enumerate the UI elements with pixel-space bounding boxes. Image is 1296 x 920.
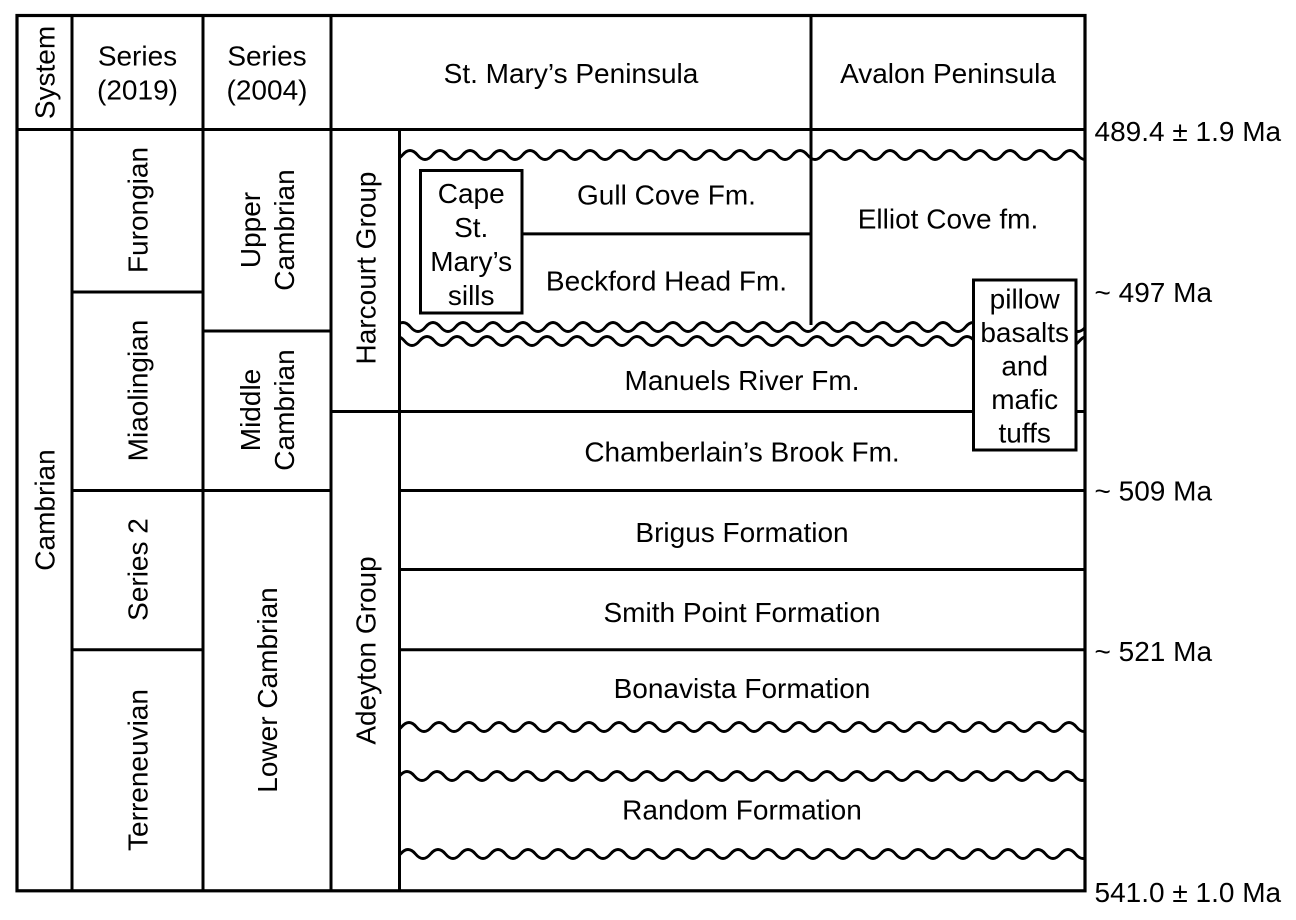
- svg-text:~ 509 Ma: ~ 509 Ma: [1095, 476, 1213, 507]
- svg-text:pillow: pillow: [990, 284, 1061, 315]
- svg-text:System: System: [30, 26, 61, 119]
- svg-text:~ 521 Ma: ~ 521 Ma: [1095, 636, 1213, 667]
- svg-text:Cape: Cape: [438, 178, 505, 209]
- svg-text:Chamberlain’s Brook Fm.: Chamberlain’s Brook Fm.: [584, 437, 899, 468]
- svg-text:mafic: mafic: [991, 384, 1058, 415]
- svg-text:Elliot Cove fm.: Elliot Cove fm.: [858, 204, 1039, 235]
- svg-text:Series 2: Series 2: [123, 518, 154, 621]
- svg-text:Lower Cambrian: Lower Cambrian: [252, 587, 283, 792]
- svg-text:St. Mary’s Peninsula: St. Mary’s Peninsula: [444, 58, 699, 89]
- svg-text:Mary’s: Mary’s: [430, 246, 512, 277]
- svg-text:Smith Point Formation: Smith Point Formation: [604, 597, 881, 628]
- svg-text:(2019): (2019): [97, 75, 178, 106]
- svg-text:489.4 ± 1.9 Ma: 489.4 ± 1.9 Ma: [1095, 116, 1282, 147]
- svg-text:Brigus Formation: Brigus Formation: [635, 517, 848, 548]
- svg-text:sills: sills: [448, 280, 495, 311]
- svg-text:(2004): (2004): [227, 75, 308, 106]
- svg-text:Adeyton Group: Adeyton Group: [351, 556, 382, 744]
- svg-text:MiddleCambrian: MiddleCambrian: [235, 349, 300, 470]
- svg-text:Cambrian: Cambrian: [30, 449, 61, 570]
- svg-text:541.0 ± 1.0 Ma: 541.0 ± 1.0 Ma: [1095, 877, 1282, 908]
- svg-text:Gull Cove Fm.: Gull Cove Fm.: [577, 180, 756, 211]
- svg-text:Avalon Peninsula: Avalon Peninsula: [840, 58, 1056, 89]
- svg-text:UpperCambrian: UpperCambrian: [235, 169, 300, 290]
- svg-text:Manuels River Fm.: Manuels River Fm.: [625, 365, 860, 396]
- svg-text:Harcourt Group: Harcourt Group: [351, 172, 382, 365]
- svg-text:Miaolingian: Miaolingian: [123, 320, 154, 462]
- svg-text:Furongian: Furongian: [123, 147, 154, 273]
- svg-text:Terreneuvian: Terreneuvian: [123, 689, 154, 851]
- svg-text:Series: Series: [227, 41, 306, 72]
- svg-text:tuffs: tuffs: [998, 418, 1050, 449]
- svg-text:and: and: [1001, 351, 1048, 382]
- svg-text:basalts: basalts: [980, 317, 1069, 348]
- svg-text:St.: St.: [454, 212, 488, 243]
- svg-text:~ 497 Ma: ~ 497 Ma: [1095, 277, 1213, 308]
- svg-text:Series: Series: [98, 41, 177, 72]
- svg-text:Beckford Head Fm.: Beckford Head Fm.: [546, 266, 787, 297]
- svg-text:Random Formation: Random Formation: [622, 795, 862, 826]
- svg-text:Bonavista Formation: Bonavista Formation: [614, 673, 871, 704]
